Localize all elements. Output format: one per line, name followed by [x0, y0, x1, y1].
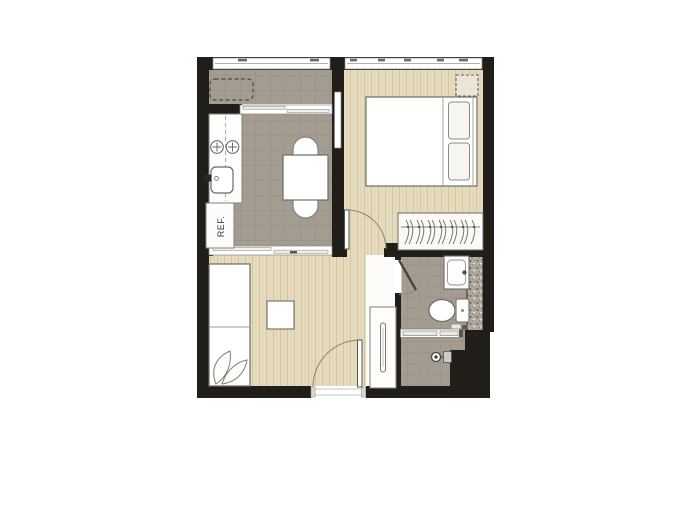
bedside-dashed-outline [456, 75, 478, 96]
interior-glass-panel [335, 92, 342, 148]
sofa-bed [209, 264, 250, 386]
wash-basin-icon [444, 256, 469, 289]
refrigerator-box: REF. [206, 203, 234, 248]
dining-table [283, 155, 328, 200]
toilet-bowl [429, 300, 455, 322]
door-leaf [345, 210, 350, 249]
balcony-sliding-window [240, 105, 332, 114]
double-bed [366, 97, 477, 186]
floor-plan: REF. [0, 0, 690, 506]
bedroom-doorway-floor [347, 243, 386, 257]
pillow [449, 143, 470, 180]
bedroom-window [345, 58, 482, 69]
floor-plan-drawing: REF. [0, 0, 690, 506]
balcony-window [213, 58, 330, 69]
wardrobe [398, 213, 483, 250]
faucet-icon [462, 270, 466, 274]
coffee-table [267, 301, 294, 329]
toilet-icon [429, 299, 469, 322]
entrance-threshold [311, 387, 366, 397]
faucet-icon [205, 175, 212, 182]
refrigerator-label: REF. [216, 216, 226, 238]
shower-screen [401, 329, 464, 338]
door-leaf [358, 340, 363, 387]
balcony-floor [209, 70, 332, 104]
pillow [449, 102, 470, 139]
foyer-cabinet [370, 307, 396, 388]
